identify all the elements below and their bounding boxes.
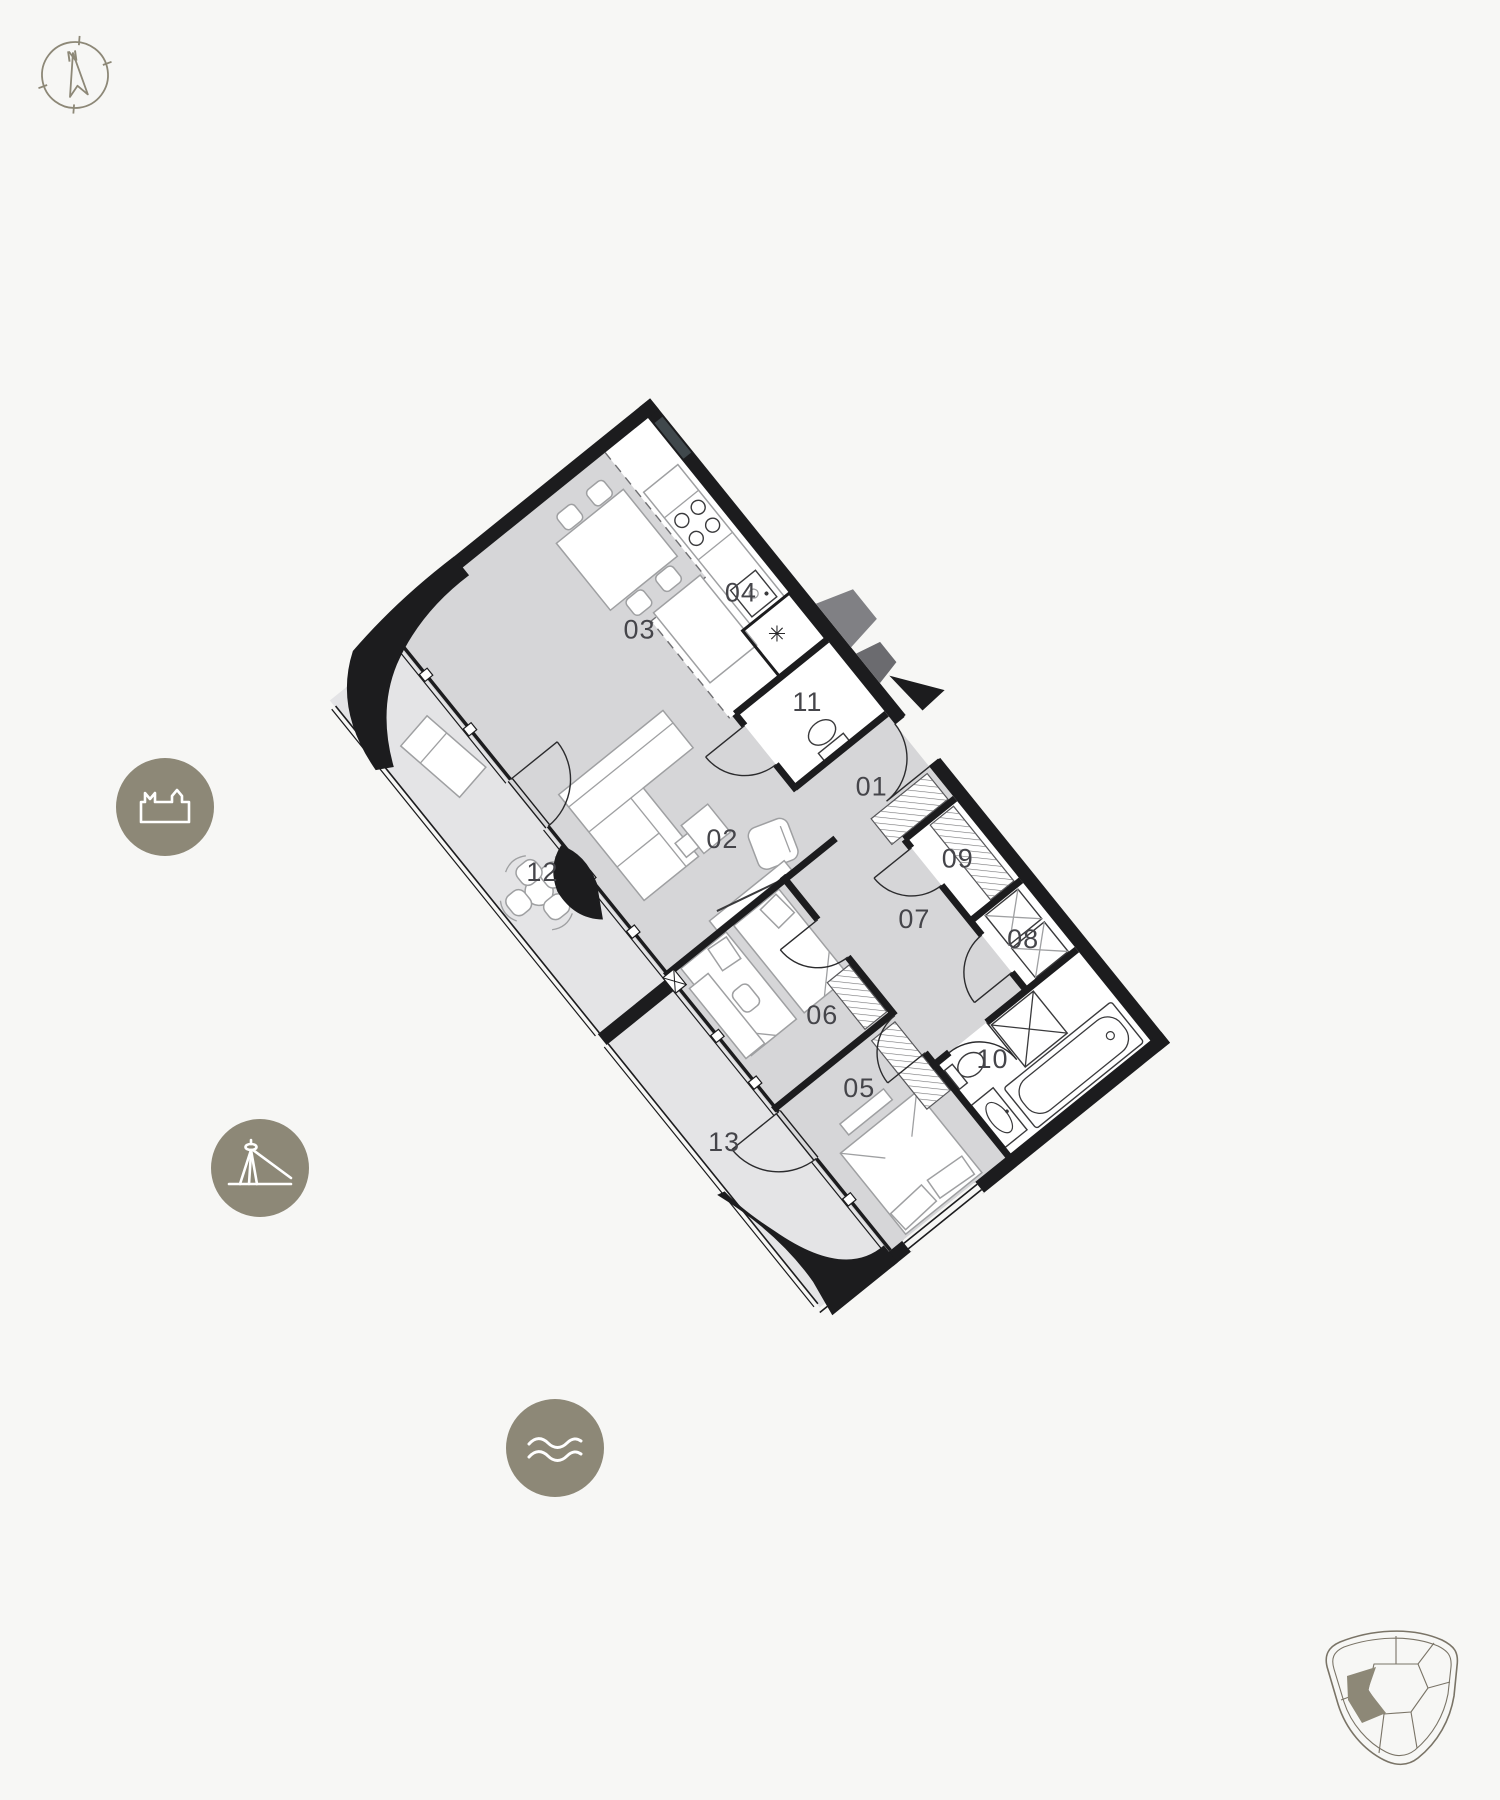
fridge-symbol: ✳ bbox=[768, 622, 786, 647]
badge-river[interactable] bbox=[506, 1399, 604, 1497]
room-label-04: 04 bbox=[725, 578, 757, 608]
highlighted-unit bbox=[1347, 1667, 1386, 1723]
room-label-06: 06 bbox=[806, 1000, 838, 1030]
compass-icon: N bbox=[32, 32, 118, 118]
room-label-11: 11 bbox=[792, 687, 822, 717]
apartment-plan: ✳ 01 02 03 04 05 06 07 08 09 10 11 12 13 bbox=[301, 369, 1206, 1324]
building-minimap[interactable] bbox=[1326, 1631, 1457, 1764]
room-label-05: 05 bbox=[843, 1073, 875, 1103]
entrance-arrow bbox=[889, 654, 946, 713]
room-label-03: 03 bbox=[623, 614, 655, 644]
room-label-13: 13 bbox=[708, 1127, 740, 1157]
room-label-12: 12 bbox=[526, 857, 558, 887]
floor-plan-canvas: N bbox=[0, 0, 1500, 1800]
room-label-08: 08 bbox=[1007, 924, 1039, 954]
room-label-01: 01 bbox=[856, 772, 888, 802]
room-label-09: 09 bbox=[942, 843, 974, 873]
badge-castle[interactable] bbox=[116, 758, 214, 856]
room-label-02: 02 bbox=[706, 824, 738, 854]
room-label-07: 07 bbox=[898, 904, 930, 934]
badge-bridge[interactable] bbox=[211, 1119, 309, 1217]
room-label-10: 10 bbox=[977, 1044, 1009, 1074]
compass-north-label: N bbox=[66, 48, 79, 66]
floor-plan-page: N bbox=[0, 0, 1500, 1800]
